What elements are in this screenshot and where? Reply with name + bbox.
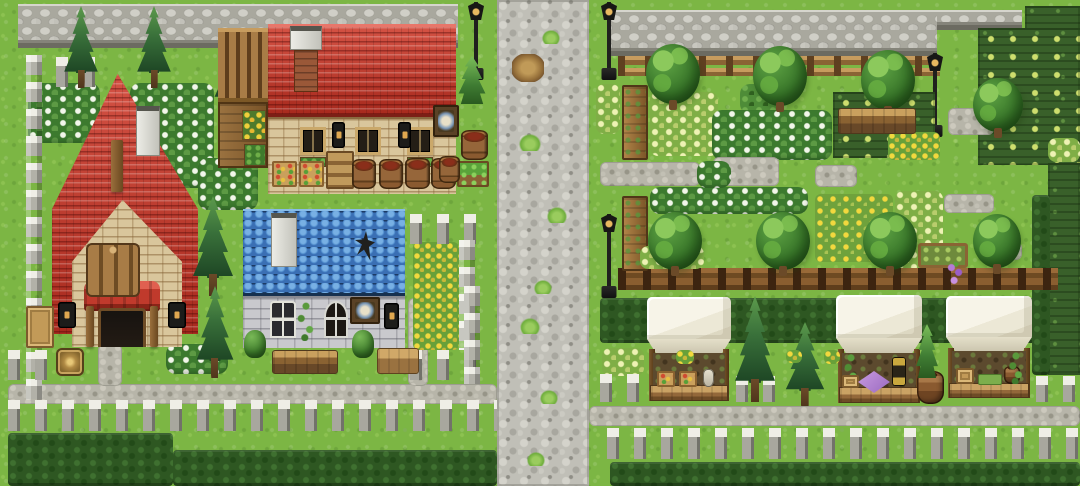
produce-box[interactable]: [657, 371, 675, 387]
rail-fence-garden-bottom: [618, 268, 1058, 290]
shop-sign[interactable]: [433, 105, 459, 137]
produce-crate[interactable]: [299, 161, 324, 187]
blue-roof-shop: [243, 209, 405, 348]
stone-cluster: [815, 165, 857, 187]
barrel[interactable]: [461, 130, 488, 160]
window: [300, 127, 326, 155]
hedge-bottom-right: [610, 462, 1080, 486]
orchard-tree: [973, 214, 1021, 268]
basket[interactable]: [842, 375, 859, 388]
porch-post: [86, 306, 94, 347]
orchard-tree: [646, 44, 700, 104]
white-flower-hedge: [697, 161, 731, 188]
market-stall-goods[interactable]: [836, 295, 922, 403]
market-stall-produce[interactable]: [647, 297, 731, 401]
porch-post: [150, 306, 158, 347]
bench[interactable]: [272, 350, 338, 374]
chimney-brick: [294, 50, 318, 92]
topiary-bush: [352, 330, 374, 358]
post-fence-left-column: [26, 55, 42, 400]
vegetable-crate[interactable]: [457, 161, 489, 187]
double-window: [270, 301, 296, 338]
wall-lamp: [332, 122, 345, 148]
raised-planter: [622, 85, 648, 160]
balcony-railing: [218, 28, 268, 102]
yellow-flower-garden: [413, 242, 459, 350]
wall-vine: [294, 300, 318, 341]
orchard-tree: [863, 212, 917, 270]
yellow-flower-patch: [888, 132, 940, 160]
emblem-mat[interactable]: [56, 348, 84, 376]
yellow-flower-tuft: [824, 350, 840, 364]
street-lamp: [597, 2, 621, 80]
tilled-strip-top-right: [1025, 6, 1080, 30]
red-gable-house: [52, 74, 198, 347]
wall-lamp: [384, 303, 399, 329]
produce-crate[interactable]: [272, 161, 297, 187]
grass-tuft: [527, 452, 545, 466]
trophy-figure[interactable]: [892, 357, 906, 386]
post-fence-stalls-left: [600, 374, 646, 402]
grass-tuft: [540, 390, 558, 404]
stone-cluster: [944, 194, 994, 213]
garden-bench[interactable]: [838, 108, 916, 134]
stall-canopy: [946, 296, 1032, 339]
storage-crate[interactable]: [26, 306, 54, 348]
yellow-flower-box: [242, 110, 266, 140]
barrel[interactable]: [439, 156, 460, 183]
street-lamp: [597, 214, 621, 298]
hedge-bottom-left-b: [173, 450, 497, 486]
post-fence-bottom-right-row: [607, 428, 1080, 459]
canopy-skirt: [836, 338, 922, 354]
produce-box[interactable]: [679, 371, 697, 387]
wooden-box[interactable]: [956, 368, 974, 384]
gravel-walkway-door: [98, 344, 122, 386]
market-stall-wares[interactable]: [946, 296, 1032, 398]
sign-post[interactable]: [111, 140, 123, 192]
front-door[interactable]: [98, 308, 146, 347]
stone-cluster: [600, 162, 700, 186]
jug[interactable]: [703, 369, 714, 387]
grass-tuft: [519, 134, 541, 151]
yellow-flower-tuft: [786, 350, 802, 363]
orchard-tree: [756, 212, 810, 270]
stall-canopy: [647, 297, 731, 341]
gravel-path-right: [589, 406, 1080, 426]
stone-wall-top-far-right: [937, 10, 1022, 30]
dirt-patch-road: [512, 54, 544, 82]
orchard-tree: [648, 212, 702, 270]
wall-lamp: [58, 302, 76, 328]
post-fence-road-left: [464, 286, 480, 384]
barrel[interactable]: [352, 159, 376, 189]
topiary-bush: [244, 330, 266, 358]
orchard-tree: [753, 46, 807, 106]
arched-window: [324, 301, 348, 338]
grass-tuft: [534, 280, 552, 294]
stall-counter: [949, 383, 1029, 398]
post-fence-stalls-right: [1036, 376, 1080, 402]
chimney: [136, 106, 160, 156]
white-flower-crop: [712, 110, 832, 160]
hedge-bottom-left-a: [8, 433, 173, 486]
white-flower-hedge: [650, 187, 808, 214]
wooden-balcony: [218, 26, 268, 168]
grass-tuft: [547, 207, 567, 223]
wall-lamp: [398, 122, 411, 148]
small-table[interactable]: [377, 348, 419, 374]
chimney-cap: [290, 26, 322, 50]
green-planter: [244, 144, 266, 166]
grass-tuft: [542, 30, 560, 44]
orchard-tree: [973, 78, 1023, 132]
green-mat[interactable]: [978, 374, 1002, 385]
window: [355, 127, 381, 155]
post-fence-bottom-left-row: [8, 400, 497, 431]
crop-bed: [650, 92, 718, 156]
light-bush: [596, 84, 620, 134]
wooden-steps: [326, 151, 354, 189]
hanging-plant: [1008, 351, 1024, 384]
light-plants: [602, 348, 644, 376]
stall-counter: [650, 385, 728, 401]
post-fence-bottom-left-trio: [8, 350, 56, 380]
barrel[interactable]: [405, 158, 430, 189]
purple-flowers: [946, 258, 964, 290]
blue-roof: [243, 209, 405, 296]
barrel[interactable]: [379, 159, 403, 189]
village-map: [0, 0, 1080, 486]
orchard-tree: [861, 50, 915, 110]
grass-tuft: [520, 318, 540, 334]
chimney: [271, 213, 297, 267]
stall-canopy: [836, 295, 922, 340]
wall-lamp: [168, 302, 186, 328]
shop-sign[interactable]: [350, 297, 380, 324]
crop-bed: [1048, 138, 1080, 162]
log-pile: [86, 243, 140, 297]
yellow-flower-tuft: [676, 350, 694, 364]
